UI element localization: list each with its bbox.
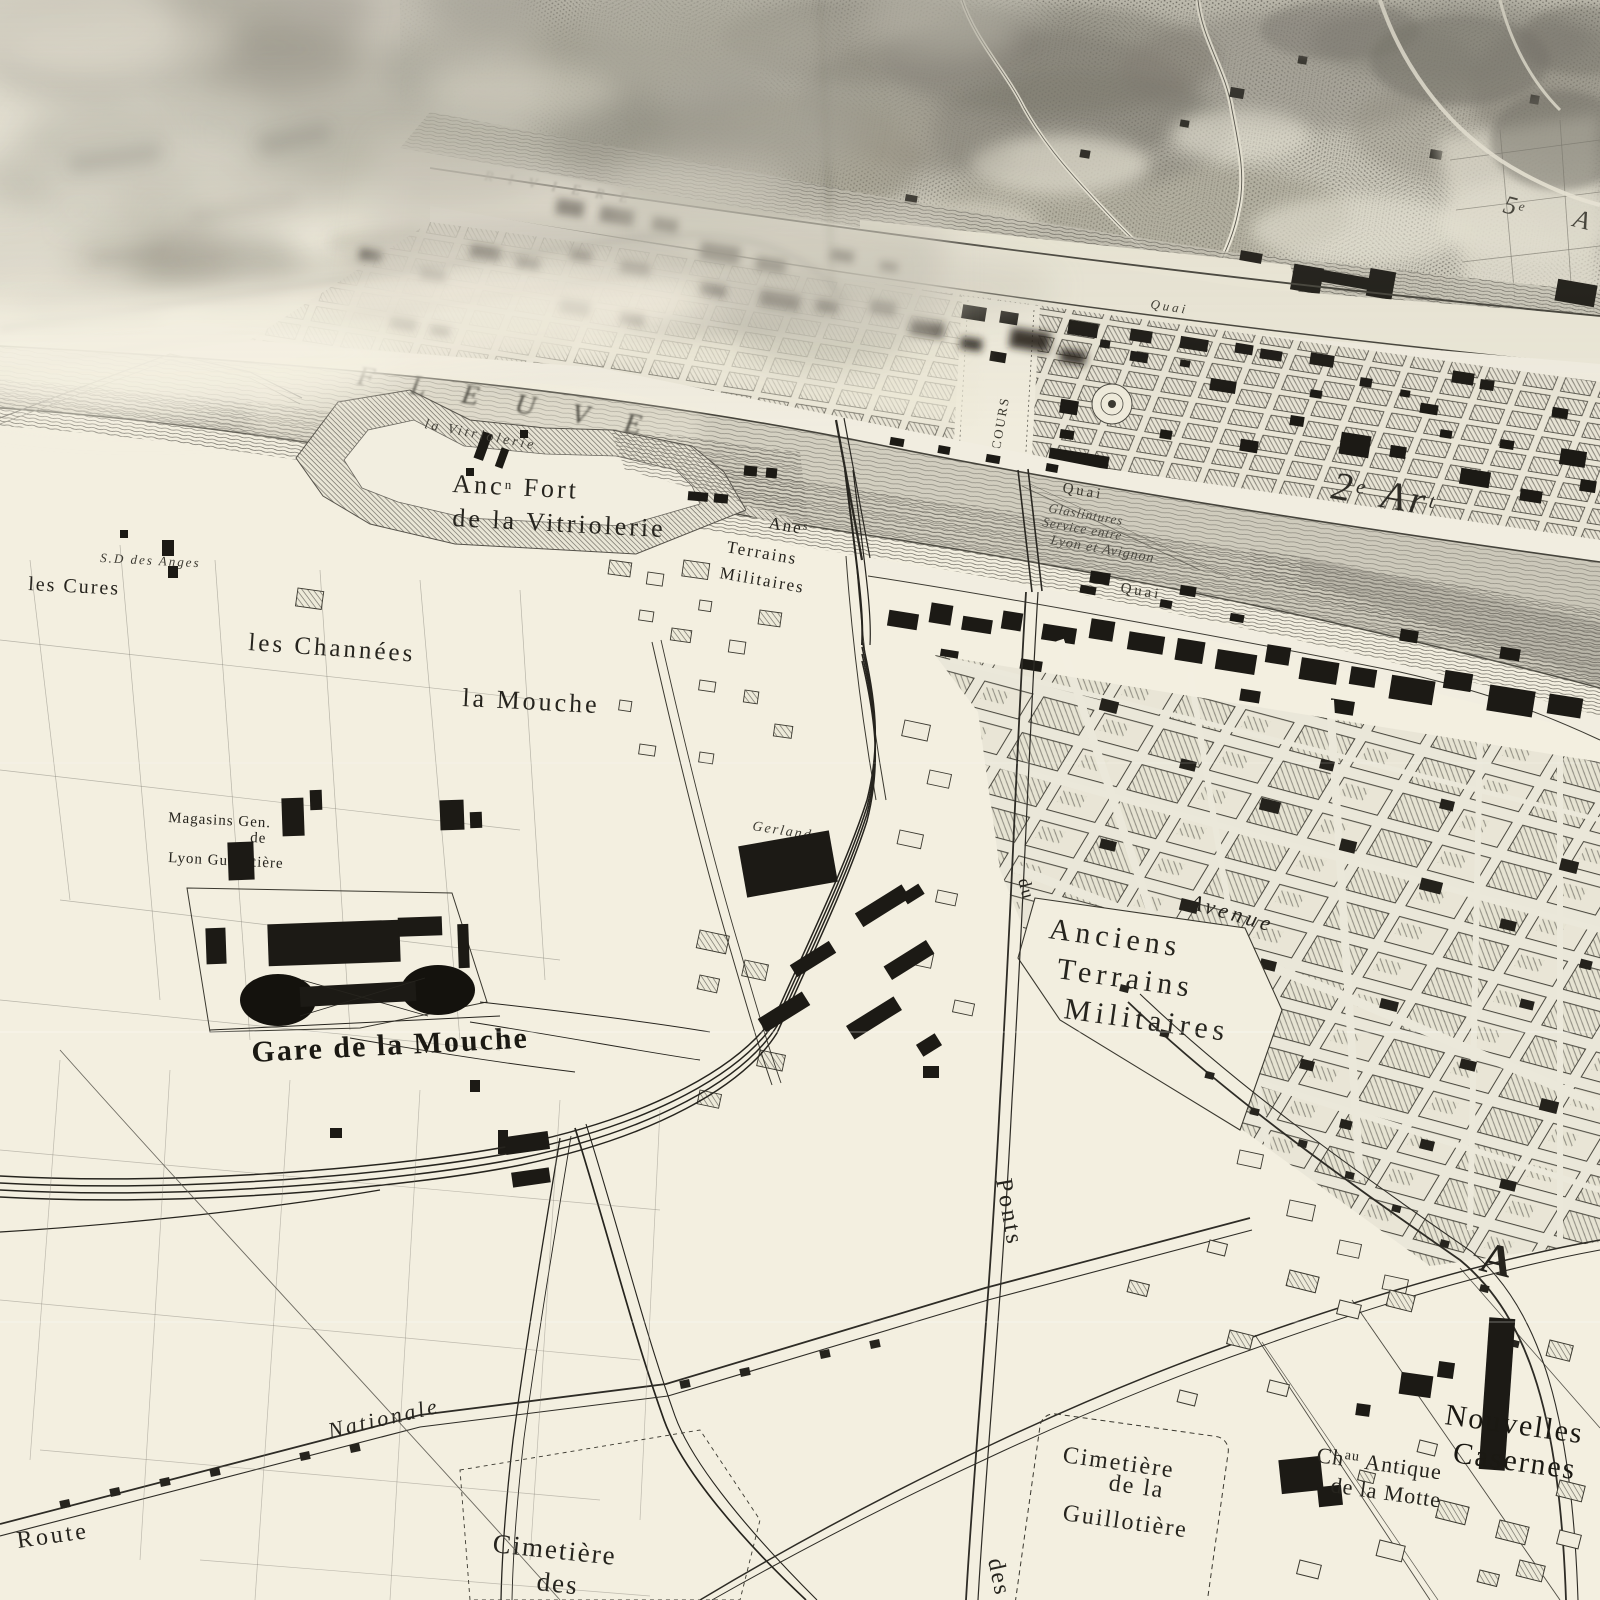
- svg-text:des: des: [535, 1566, 580, 1600]
